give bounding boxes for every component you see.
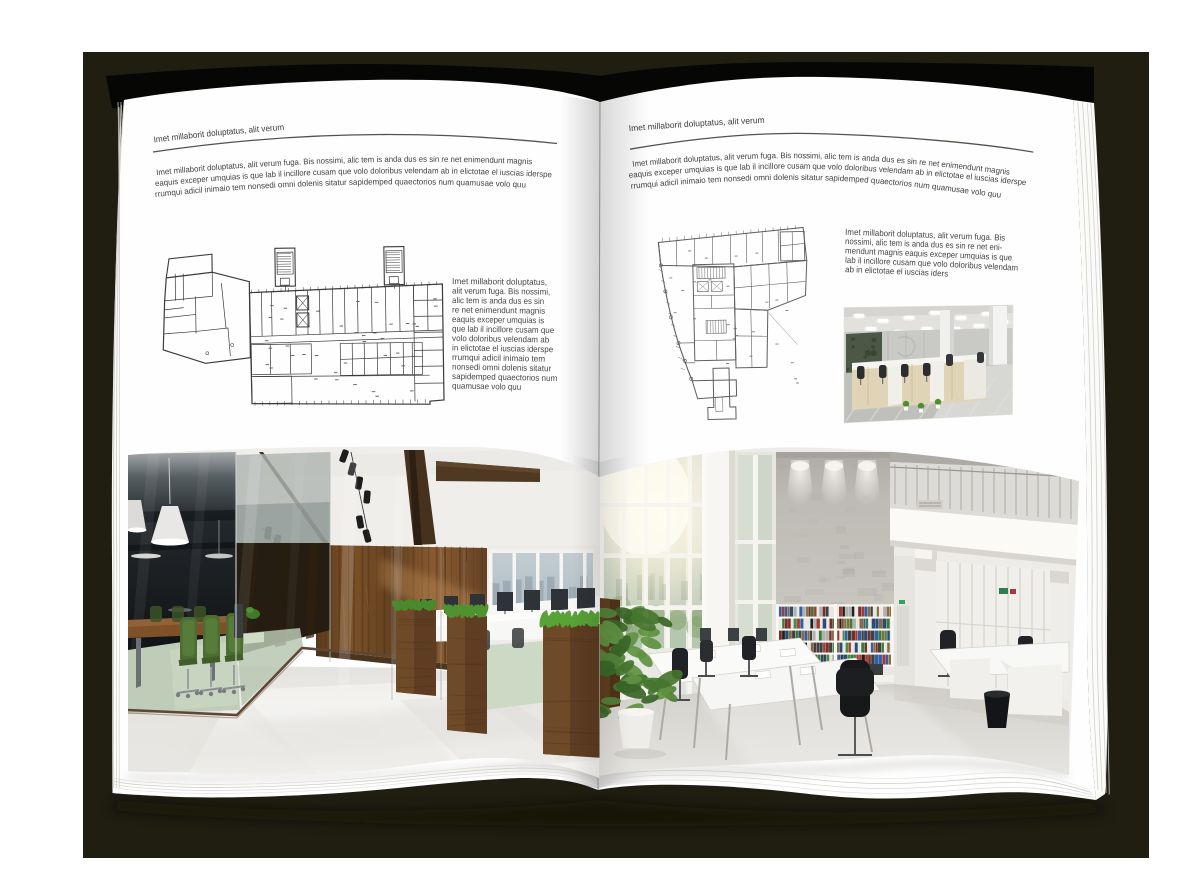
svg-text:alic tem is anda dus es sin: alic tem is anda dus es sin bbox=[452, 295, 544, 306]
svg-text:quamusae volo quu: quamusae volo quu bbox=[452, 381, 522, 392]
svg-text:re net enimendunt magnis: re net enimendunt magnis bbox=[452, 305, 545, 316]
svg-text:alit verum fuga. Bis nossimi,: alit verum fuga. Bis nossimi, bbox=[452, 286, 550, 297]
svg-text:Imet millaborit doluptatus,: Imet millaborit doluptatus, bbox=[452, 276, 547, 287]
svg-text:eaquis exceper umquias is: eaquis exceper umquias is bbox=[452, 314, 544, 325]
